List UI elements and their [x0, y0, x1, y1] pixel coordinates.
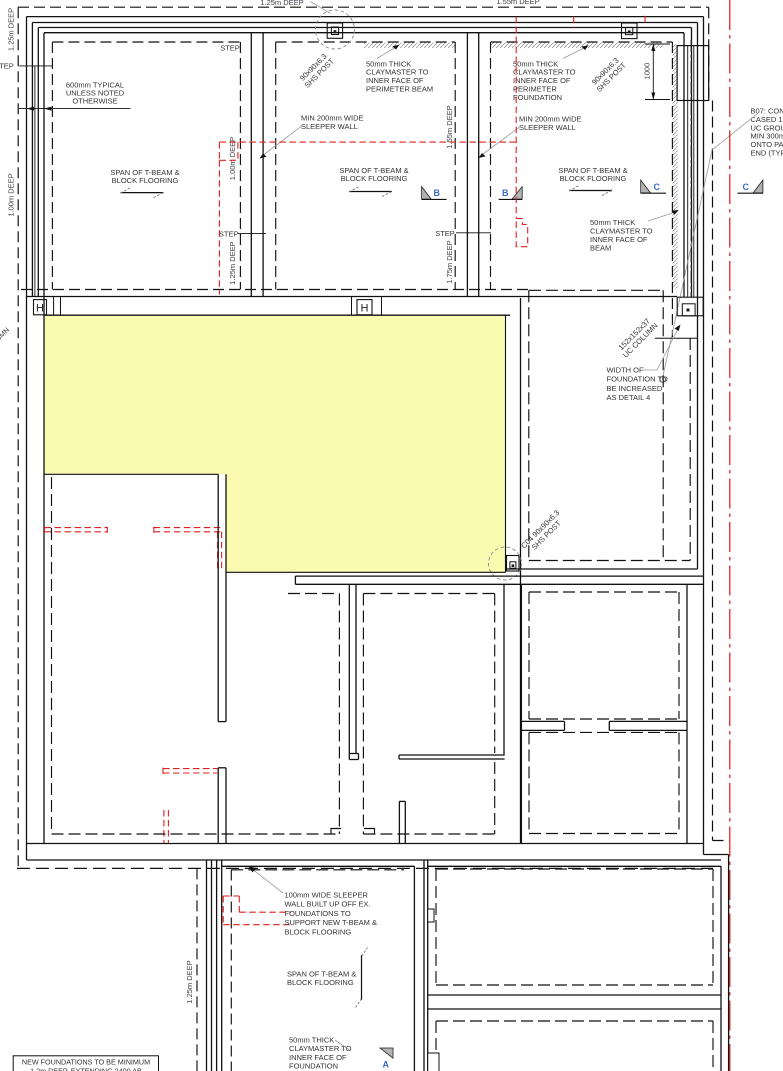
svg-text:50mm THICK: 50mm THICK	[289, 1035, 334, 1044]
svg-text:1.25m DEEP: 1.25m DEEP	[228, 241, 237, 284]
svg-text:1.55m DEEP: 1.55m DEEP	[496, 0, 539, 6]
svg-text:FOUNDATION: FOUNDATION	[513, 93, 562, 102]
svg-text:BE INCREASED: BE INCREASED	[607, 384, 663, 393]
svg-text:INNER FACE OF: INNER FACE OF	[289, 1053, 347, 1062]
svg-text:SLEEPER WALL: SLEEPER WALL	[301, 122, 358, 131]
svg-text:BLOCK FLOORING: BLOCK FLOORING	[287, 978, 354, 987]
svg-text:B: B	[502, 188, 509, 198]
svg-text:BLOCK FLOORING: BLOCK FLOORING	[285, 928, 352, 937]
svg-text:100mm WIDE SLEEPER: 100mm WIDE SLEEPER	[285, 890, 369, 899]
svg-text:FOUNDATIONS TO: FOUNDATIONS TO	[285, 909, 351, 918]
svg-text:H: H	[361, 303, 369, 315]
svg-text:1.75m DEEP: 1.75m DEEP	[445, 240, 454, 283]
svg-text:WALL BUILT UP OFF EX.: WALL BUILT UP OFF EX.	[285, 900, 371, 909]
svg-text:PERIMETER BEAM: PERIMETER BEAM	[366, 85, 433, 94]
svg-text:STEP: STEP	[0, 61, 14, 70]
svg-text:C: C	[654, 182, 661, 192]
svg-text:OTHERWISE: OTHERWISE	[72, 97, 117, 106]
svg-text:B: B	[433, 188, 440, 198]
svg-text:AS DETAIL 4: AS DETAIL 4	[607, 393, 651, 402]
svg-text:STEP: STEP	[435, 229, 455, 238]
svg-text:FOUNDATION TO: FOUNDATION TO	[607, 375, 668, 384]
svg-text:SLEEPER WALL: SLEEPER WALL	[519, 123, 576, 132]
svg-text:1000: 1000	[643, 63, 652, 80]
svg-text:STEP: STEP	[219, 229, 239, 238]
svg-text:1.25m DEEP: 1.25m DEEP	[7, 8, 16, 51]
svg-text:WIDTH OF: WIDTH OF	[607, 366, 644, 375]
svg-text:FOUNDATION: FOUNDATION	[289, 1062, 338, 1071]
svg-text:BLOCK FLOORING: BLOCK FLOORING	[112, 176, 179, 185]
svg-text:END (TYP): END (TYP)	[751, 149, 783, 158]
svg-text:1.25m DEEP: 1.25m DEEP	[185, 960, 194, 1003]
svg-text:SUPPORT NEW T-BEAM &: SUPPORT NEW T-BEAM &	[285, 918, 378, 927]
svg-text:BEAM: BEAM	[590, 243, 611, 252]
svg-text:NEW FOUNDATIONS TO BE MINIMUM: NEW FOUNDATIONS TO BE MINIMUM	[22, 1057, 150, 1066]
svg-text:C: C	[743, 182, 750, 192]
svg-text:H: H	[36, 303, 44, 315]
svg-text:1.00m DEEP: 1.00m DEEP	[7, 173, 16, 216]
svg-text:1.25m DEEP: 1.25m DEEP	[260, 0, 303, 7]
svg-text:BLOCK FLOORING: BLOCK FLOORING	[560, 174, 627, 183]
svg-text:1.00m DEEP: 1.00m DEEP	[228, 137, 237, 180]
svg-text:BLOCK FLOORING: BLOCK FLOORING	[341, 174, 408, 183]
svg-text:1.2m DEEP, EXTENDING 2400 AB: 1.2m DEEP, EXTENDING 2400 AB	[30, 1066, 142, 1071]
svg-text:STEP: STEP	[220, 44, 240, 53]
svg-text:A: A	[383, 1060, 390, 1070]
